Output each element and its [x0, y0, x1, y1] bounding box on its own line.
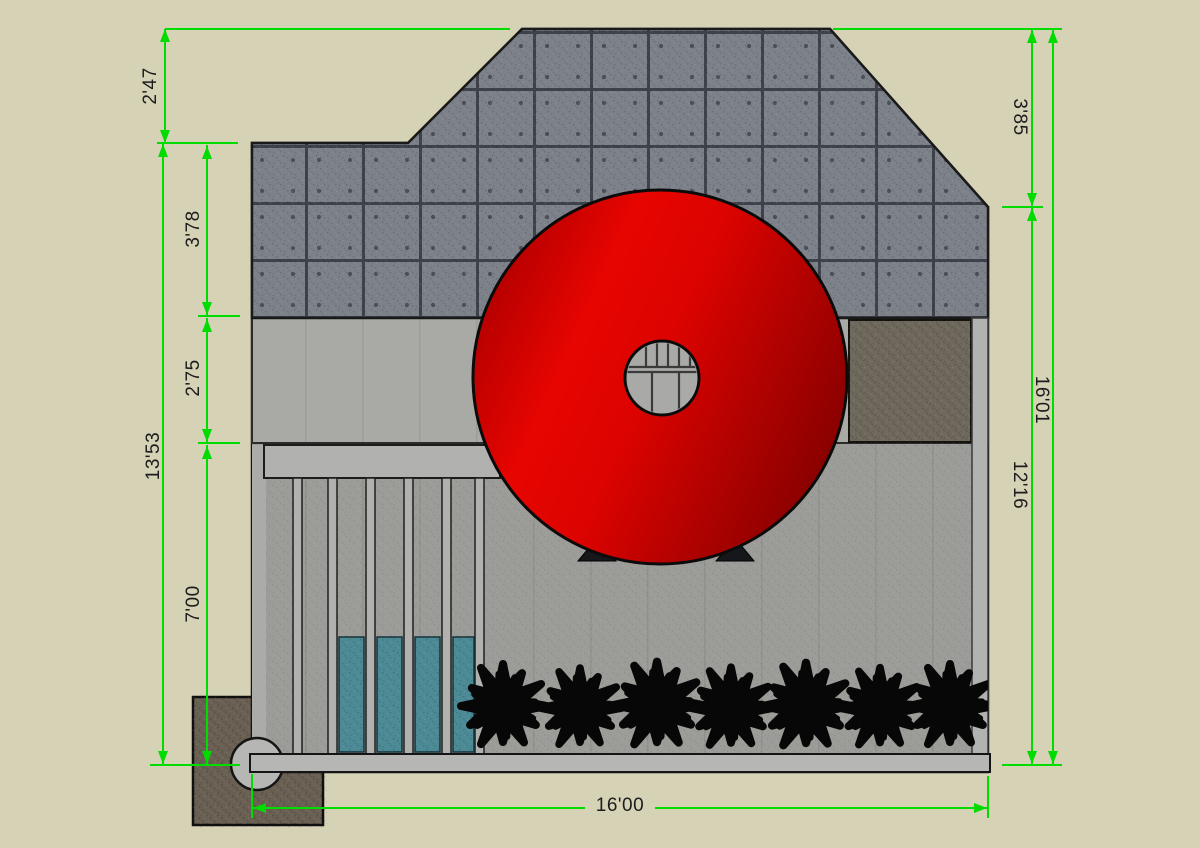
railing-post [404, 478, 413, 754]
dimension-arrow [1027, 30, 1037, 43]
dim-label-right-roof-slope: 3'85 [1008, 98, 1030, 135]
base-beam [250, 754, 990, 772]
dim-label-left-middle: 2'75 [183, 359, 205, 396]
brown-panel [849, 320, 976, 446]
dimension-arrow [1048, 30, 1058, 43]
dimension-arrow [202, 146, 212, 159]
dimension-arrow [160, 29, 170, 42]
elevation-canvas: 2'47 3'78 2'75 13'53 7'00 3'85 16'01 12'… [0, 0, 1200, 848]
dim-label-left-lower: 7'00 [183, 585, 205, 622]
dim-label-right-body: 12'16 [1008, 461, 1030, 509]
dimension-arrow [158, 144, 168, 157]
railing-top-beam [264, 445, 500, 478]
hub-opening [625, 341, 699, 415]
dim-label-left-roof-offset: 2'47 [140, 67, 162, 104]
railing-post [442, 478, 451, 754]
railing-post [366, 478, 375, 754]
dimension-arrow [202, 302, 212, 315]
dimension-arrow [1027, 208, 1037, 221]
dimension-arrow [974, 803, 987, 813]
dimension-arrow [202, 446, 212, 459]
dimension-arrow [1048, 751, 1058, 764]
dimension-arrow [1027, 193, 1037, 206]
dimension-arrow [1027, 751, 1037, 764]
dimension-arrow [158, 751, 168, 764]
railing-post [328, 478, 337, 754]
railing-post [293, 478, 302, 754]
dim-label-bottom-width: 16'00 [596, 795, 644, 817]
railing-left-frame [252, 445, 266, 754]
dimension-arrow [202, 319, 212, 332]
dim-label-left-overall: 13'53 [143, 432, 165, 480]
building-body [252, 29, 994, 772]
dim-label-right-overall: 16'01 [1030, 376, 1052, 424]
dimension-arrow [202, 429, 212, 442]
dim-label-left-upper: 3'78 [183, 210, 205, 247]
dimension-arrow [160, 130, 170, 143]
